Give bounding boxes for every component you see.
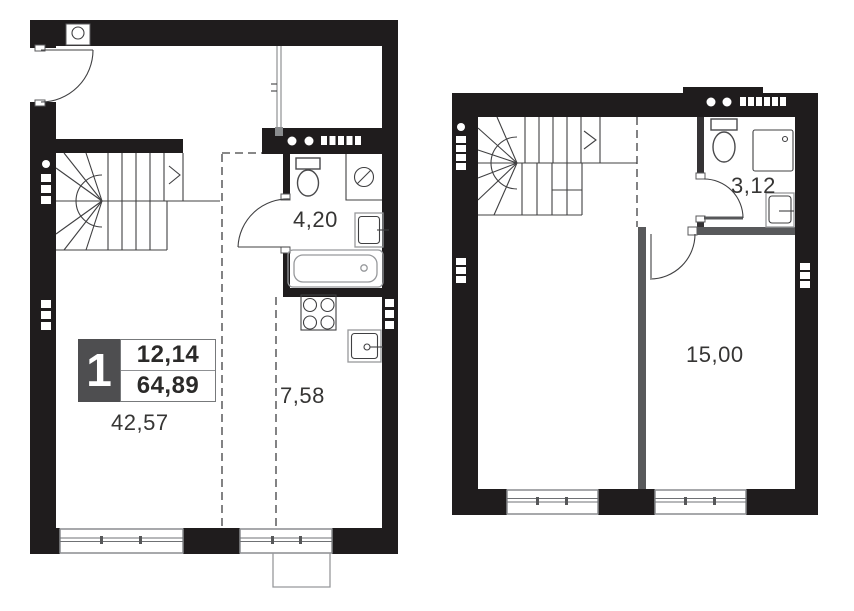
unit-area-top: 12,14 xyxy=(121,340,215,371)
living-area-label: 42,57 xyxy=(111,410,169,436)
wall xyxy=(30,528,60,554)
unit-badge: 1 12,14 64,89 xyxy=(78,339,216,402)
stair-direction-arrow xyxy=(584,131,596,149)
floor2-plan xyxy=(452,87,818,515)
window xyxy=(655,490,746,514)
kitchen-area-label: 7,58 xyxy=(280,383,325,409)
stair-direction-arrow xyxy=(169,166,180,184)
wall xyxy=(183,528,240,554)
entry-door-swing xyxy=(35,45,93,106)
interior-partition-wall xyxy=(638,227,646,489)
dashed-boundary-lines xyxy=(222,153,276,528)
wall xyxy=(332,528,398,554)
toilet-icon xyxy=(296,158,320,196)
window xyxy=(507,490,598,514)
unit-area-bottom: 64,89 xyxy=(121,371,215,401)
wall xyxy=(283,288,398,297)
bathroom-door-swing xyxy=(238,194,290,253)
room-area-label: 15,00 xyxy=(686,342,744,368)
toilet-icon xyxy=(711,119,737,162)
wall xyxy=(56,139,183,153)
washing-machine-icon xyxy=(346,154,382,200)
staircase xyxy=(478,117,637,215)
wall xyxy=(795,93,818,515)
wall xyxy=(746,489,818,515)
wall xyxy=(283,154,290,200)
wall xyxy=(452,93,818,117)
kitchen-sink-icon xyxy=(348,330,383,362)
wall xyxy=(697,117,704,179)
wall xyxy=(695,227,795,235)
unit-number: 1 xyxy=(78,339,120,402)
shower-icon xyxy=(753,130,793,171)
balcony xyxy=(273,553,330,587)
unit-area-values: 12,14 64,89 xyxy=(120,339,216,402)
glazed-partition xyxy=(271,46,283,136)
wall xyxy=(452,489,507,515)
window xyxy=(240,529,332,553)
bathroom-area-label: 4,20 xyxy=(293,207,338,233)
stove-icon xyxy=(301,295,336,330)
floor2-walls xyxy=(452,87,818,515)
wall xyxy=(30,20,56,48)
floor1-plan xyxy=(30,20,398,587)
wall xyxy=(598,489,655,515)
window xyxy=(60,529,183,553)
wall xyxy=(382,20,398,554)
room-door-swing xyxy=(650,227,697,279)
bathtub-icon xyxy=(288,250,383,287)
staircase xyxy=(56,153,220,250)
bathroom2-area-label: 3,12 xyxy=(731,173,776,199)
floorplan-drawing xyxy=(0,0,854,611)
